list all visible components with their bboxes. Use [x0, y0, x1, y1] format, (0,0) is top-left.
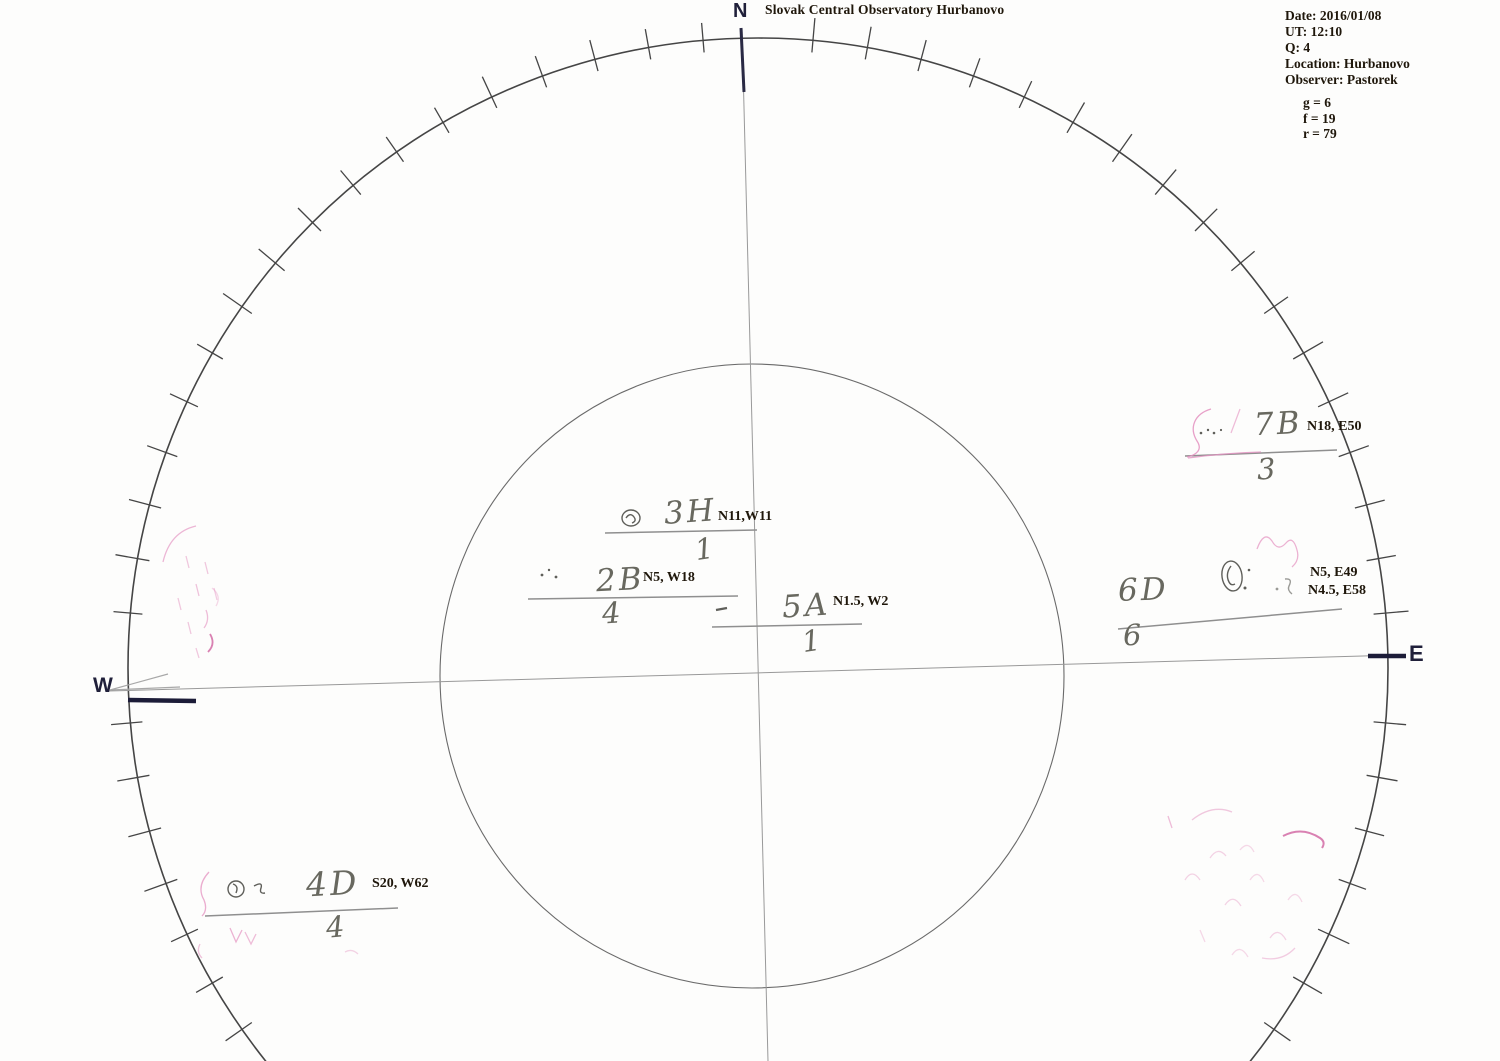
faculae-6D — [1257, 537, 1298, 567]
disk-tick — [1113, 134, 1132, 162]
ut-line: UT: 12:10 — [1285, 24, 1410, 40]
north-south-axis — [742, 28, 768, 1061]
group-7B-coords: N18, E50 — [1307, 419, 1361, 435]
disk-tick — [1339, 446, 1369, 457]
disk-tick — [117, 775, 149, 781]
disk-tick — [969, 58, 980, 87]
sunspot-7B-icon — [1200, 429, 1222, 435]
disk-tick — [111, 722, 142, 725]
disk-tick — [812, 18, 815, 52]
underline-6D — [1118, 609, 1342, 629]
group-4D-id: 4D — [305, 863, 360, 905]
disk-tick — [1374, 611, 1409, 614]
quality-line: Q: 4 — [1285, 40, 1410, 56]
disk-tick — [1318, 929, 1349, 944]
east-west-axis — [108, 655, 1398, 691]
disk-tick — [1264, 297, 1288, 314]
group-5A-coords: N1.5, W2 — [833, 594, 888, 610]
spot-count-line: f = 19 — [1303, 111, 1337, 127]
faculae-7B — [1187, 409, 1261, 458]
disk-tick-marks — [111, 18, 1408, 1061]
group-underlines — [205, 450, 1342, 916]
group-6D-coords: N5, E49 — [1310, 565, 1357, 581]
sunspot-4D-icon — [228, 881, 265, 897]
group-5A-id: 5A — [781, 586, 832, 625]
faculae-west-limb — [163, 526, 218, 658]
inner-reference-circle — [440, 364, 1064, 988]
disk-tick — [918, 40, 926, 71]
disk-tick — [223, 294, 252, 314]
disk-tick — [171, 929, 198, 942]
group-7B-id: 7B — [1253, 405, 1303, 443]
group-6D-coords2: N4.5, E58 — [1308, 583, 1366, 599]
sunspot-3H-icon — [622, 510, 640, 526]
disk-tick — [1374, 722, 1407, 725]
disk-tick — [1367, 775, 1398, 781]
location-line: Location: Hurbanovo — [1285, 56, 1410, 72]
disk-tick — [645, 29, 650, 59]
group-6D-id: 6D — [1117, 571, 1169, 609]
group-6D-count: 6 — [1122, 618, 1142, 653]
disk-tick — [298, 208, 321, 231]
disk-tick — [865, 27, 871, 60]
solar-observation-sheet: Slovak Central Observatory Hurbanovo N W… — [0, 0, 1500, 1061]
page-title: Slovak Central Observatory Hurbanovo — [765, 2, 1004, 18]
disk-tick — [1231, 251, 1254, 270]
west-arrowhead — [110, 674, 180, 690]
solar-disk-drawing — [0, 0, 1500, 1061]
observation-info-block: Date: 2016/01/08 UT: 12:10 Q: 4 Location… — [1285, 8, 1410, 88]
disk-tick — [1355, 828, 1384, 836]
group-2B-id: 2B — [595, 561, 645, 599]
group-4D-count: 4 — [325, 909, 346, 944]
underline-4D — [205, 908, 398, 916]
disk-tick — [114, 612, 143, 615]
faculae-south-east — [1168, 809, 1324, 959]
disk-tick — [1339, 879, 1366, 889]
compass-north-label: N — [733, 0, 747, 23]
group-count-line: g = 6 — [1303, 95, 1337, 111]
disk-tick — [116, 555, 150, 561]
wolf-number-line: r = 79 — [1303, 126, 1337, 142]
disk-tick — [147, 446, 177, 457]
sunspot-5A-icon — [716, 608, 727, 610]
west-marker-stroke — [128, 700, 196, 701]
disk-tick — [129, 500, 161, 509]
disk-tick — [1367, 556, 1396, 561]
disk-tick — [128, 828, 161, 837]
disk-tick — [590, 40, 598, 71]
group-3H-id: 3H — [663, 492, 718, 532]
disk-tick — [1318, 393, 1348, 407]
group-7B-count: 3 — [1256, 452, 1276, 487]
disk-tick — [1195, 209, 1217, 231]
group-2B-coords: N5, W18 — [643, 570, 695, 586]
group-3H-coords: N11,W11 — [718, 509, 772, 525]
disk-tick — [1019, 81, 1031, 108]
disk-tick — [482, 77, 497, 108]
observer-line: Observer: Pastorek — [1285, 72, 1410, 88]
sunspot-2B-icon — [541, 569, 558, 579]
disk-tick — [1355, 500, 1385, 508]
disk-tick — [1293, 977, 1322, 994]
sunspot-counts-block: g = 6 f = 19 r = 79 — [1303, 95, 1337, 142]
group-2B-count: 4 — [601, 595, 622, 630]
disk-tick — [341, 171, 361, 195]
solar-disk-circle — [128, 38, 1388, 1061]
disk-tick — [535, 56, 546, 87]
compass-east-label: E — [1409, 641, 1424, 667]
compass-west-label: W — [93, 674, 113, 698]
sunspot-6D-faint-spots — [1276, 579, 1292, 594]
disk-tick — [702, 23, 705, 53]
disk-tick — [170, 394, 198, 407]
group-4D-coords: S20, W62 — [372, 876, 429, 892]
disk-tick — [144, 879, 177, 891]
sunspot-6D-icon — [1220, 560, 1250, 592]
date-line: Date: 2016/01/08 — [1285, 8, 1410, 24]
